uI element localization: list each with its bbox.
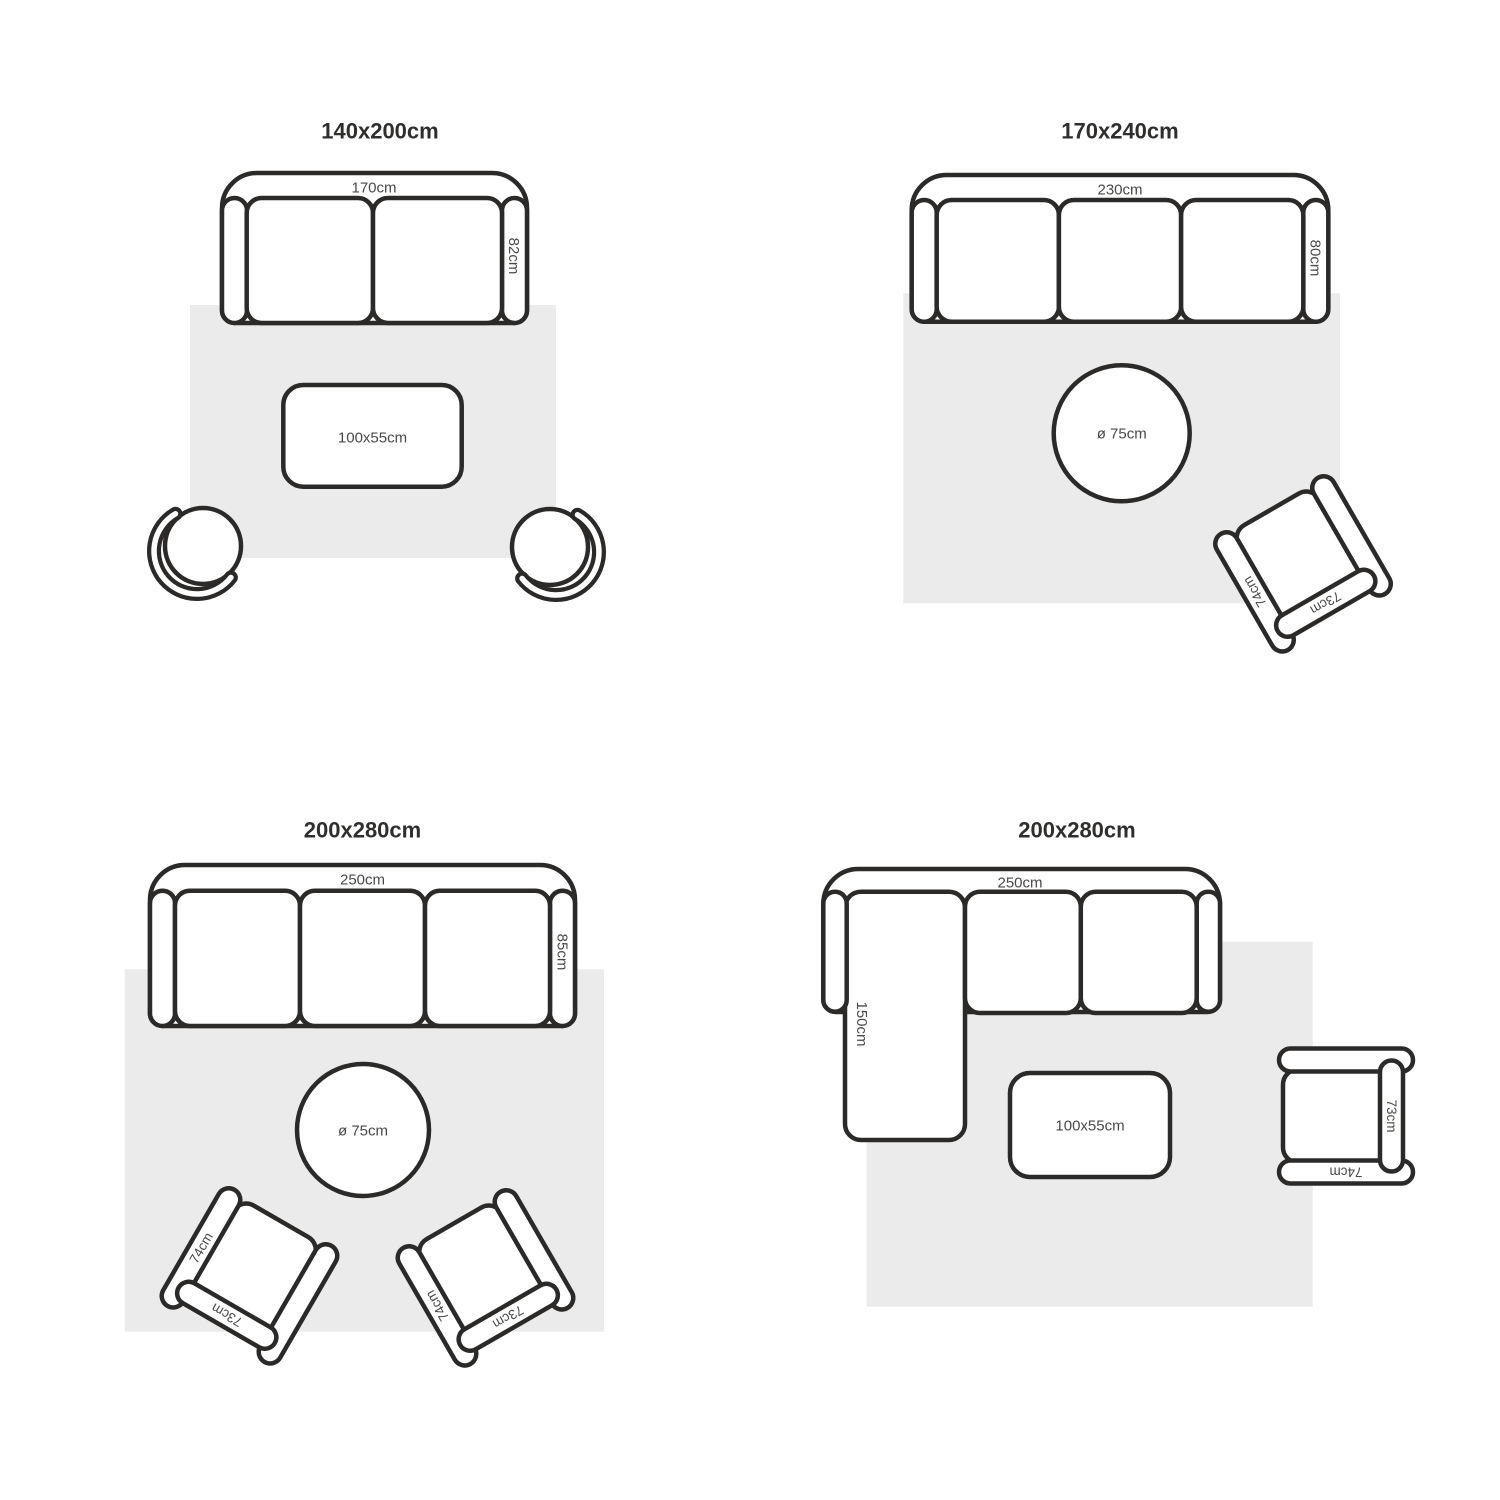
sofa-cushion [247,198,373,323]
armchair-seat [1283,1070,1389,1163]
round-table: ø 75cm [1054,365,1190,501]
round-chair-left [154,508,241,594]
rug-size-guide-page: 140x200cm 170cm 82cm 100x55cm [0,0,1500,1500]
layout-title: 140x200cm [321,119,438,144]
layout-170x240: 170x240cm 230cm 80cm ø 75cm 74cm 73cm [903,119,1395,656]
sofa-depth-label: 85cm [553,934,570,971]
coffee-table: 100x55cm [283,385,461,487]
round-table-size-label: ø 75cm [338,1122,388,1139]
sofa-depth-label: 82cm [505,238,522,275]
sofa-three-seat: 230cm 80cm [912,175,1329,322]
sofa-armrest-left [823,892,846,1012]
coffee-table-size-label: 100x55cm [1055,1117,1124,1134]
sofa-armrest-left [222,198,247,323]
sofa-cushion [1081,892,1197,1013]
layout-200x280-sectional: 200x280cm 250cm 150cm 100x55cm 74cm 73cm [823,818,1413,1307]
sofa-armrest-left [912,200,937,322]
sofa-cushion [425,891,550,1026]
sofa-two-seat: 170cm 82cm [222,173,527,323]
sofa-armrest-left [150,891,175,1026]
layout-140x200: 140x200cm 170cm 82cm 100x55cm [154,119,599,595]
round-table-size-label: ø 75cm [1097,426,1147,443]
armchair-back-label: 73cm [1384,1099,1399,1132]
coffee-table: 100x55cm [1010,1073,1170,1177]
sofa-cushion [175,891,300,1026]
chaise-depth-label: 150cm [853,1001,870,1046]
round-table: ø 75cm [297,1064,429,1196]
sofa-cushion [937,200,1059,322]
sofa-depth-label: 80cm [1307,240,1324,277]
armchair-side-label: 74cm [1329,1164,1362,1179]
sofa-width-label: 230cm [1097,181,1142,198]
round-chair-right [512,509,599,595]
sofa-cushion [1059,200,1181,322]
sofa-cushion [373,198,502,323]
layout-title: 200x280cm [304,818,421,843]
rug-size-guide-diagram: 140x200cm 170cm 82cm 100x55cm [0,0,1500,1500]
sofa-cushion [965,892,1081,1013]
sofa-cushion [1181,200,1303,322]
sofa-width-label: 170cm [351,179,396,196]
sofa-three-seat: 250cm 85cm [150,865,575,1026]
sofa-width-label: 250cm [997,874,1042,891]
layout-title: 170x240cm [1061,119,1178,144]
sofa-width-label: 250cm [340,871,385,888]
sofa-armrest-right [1197,892,1220,1012]
sofa-cushion [300,891,425,1026]
layout-title: 200x280cm [1018,818,1135,843]
coffee-table-size-label: 100x55cm [338,429,407,446]
armchair: 74cm 73cm [1279,1049,1413,1184]
layout-200x280-three-seat: 200x280cm 250cm 85cm ø 75cm 74cm 73cm [125,818,604,1370]
